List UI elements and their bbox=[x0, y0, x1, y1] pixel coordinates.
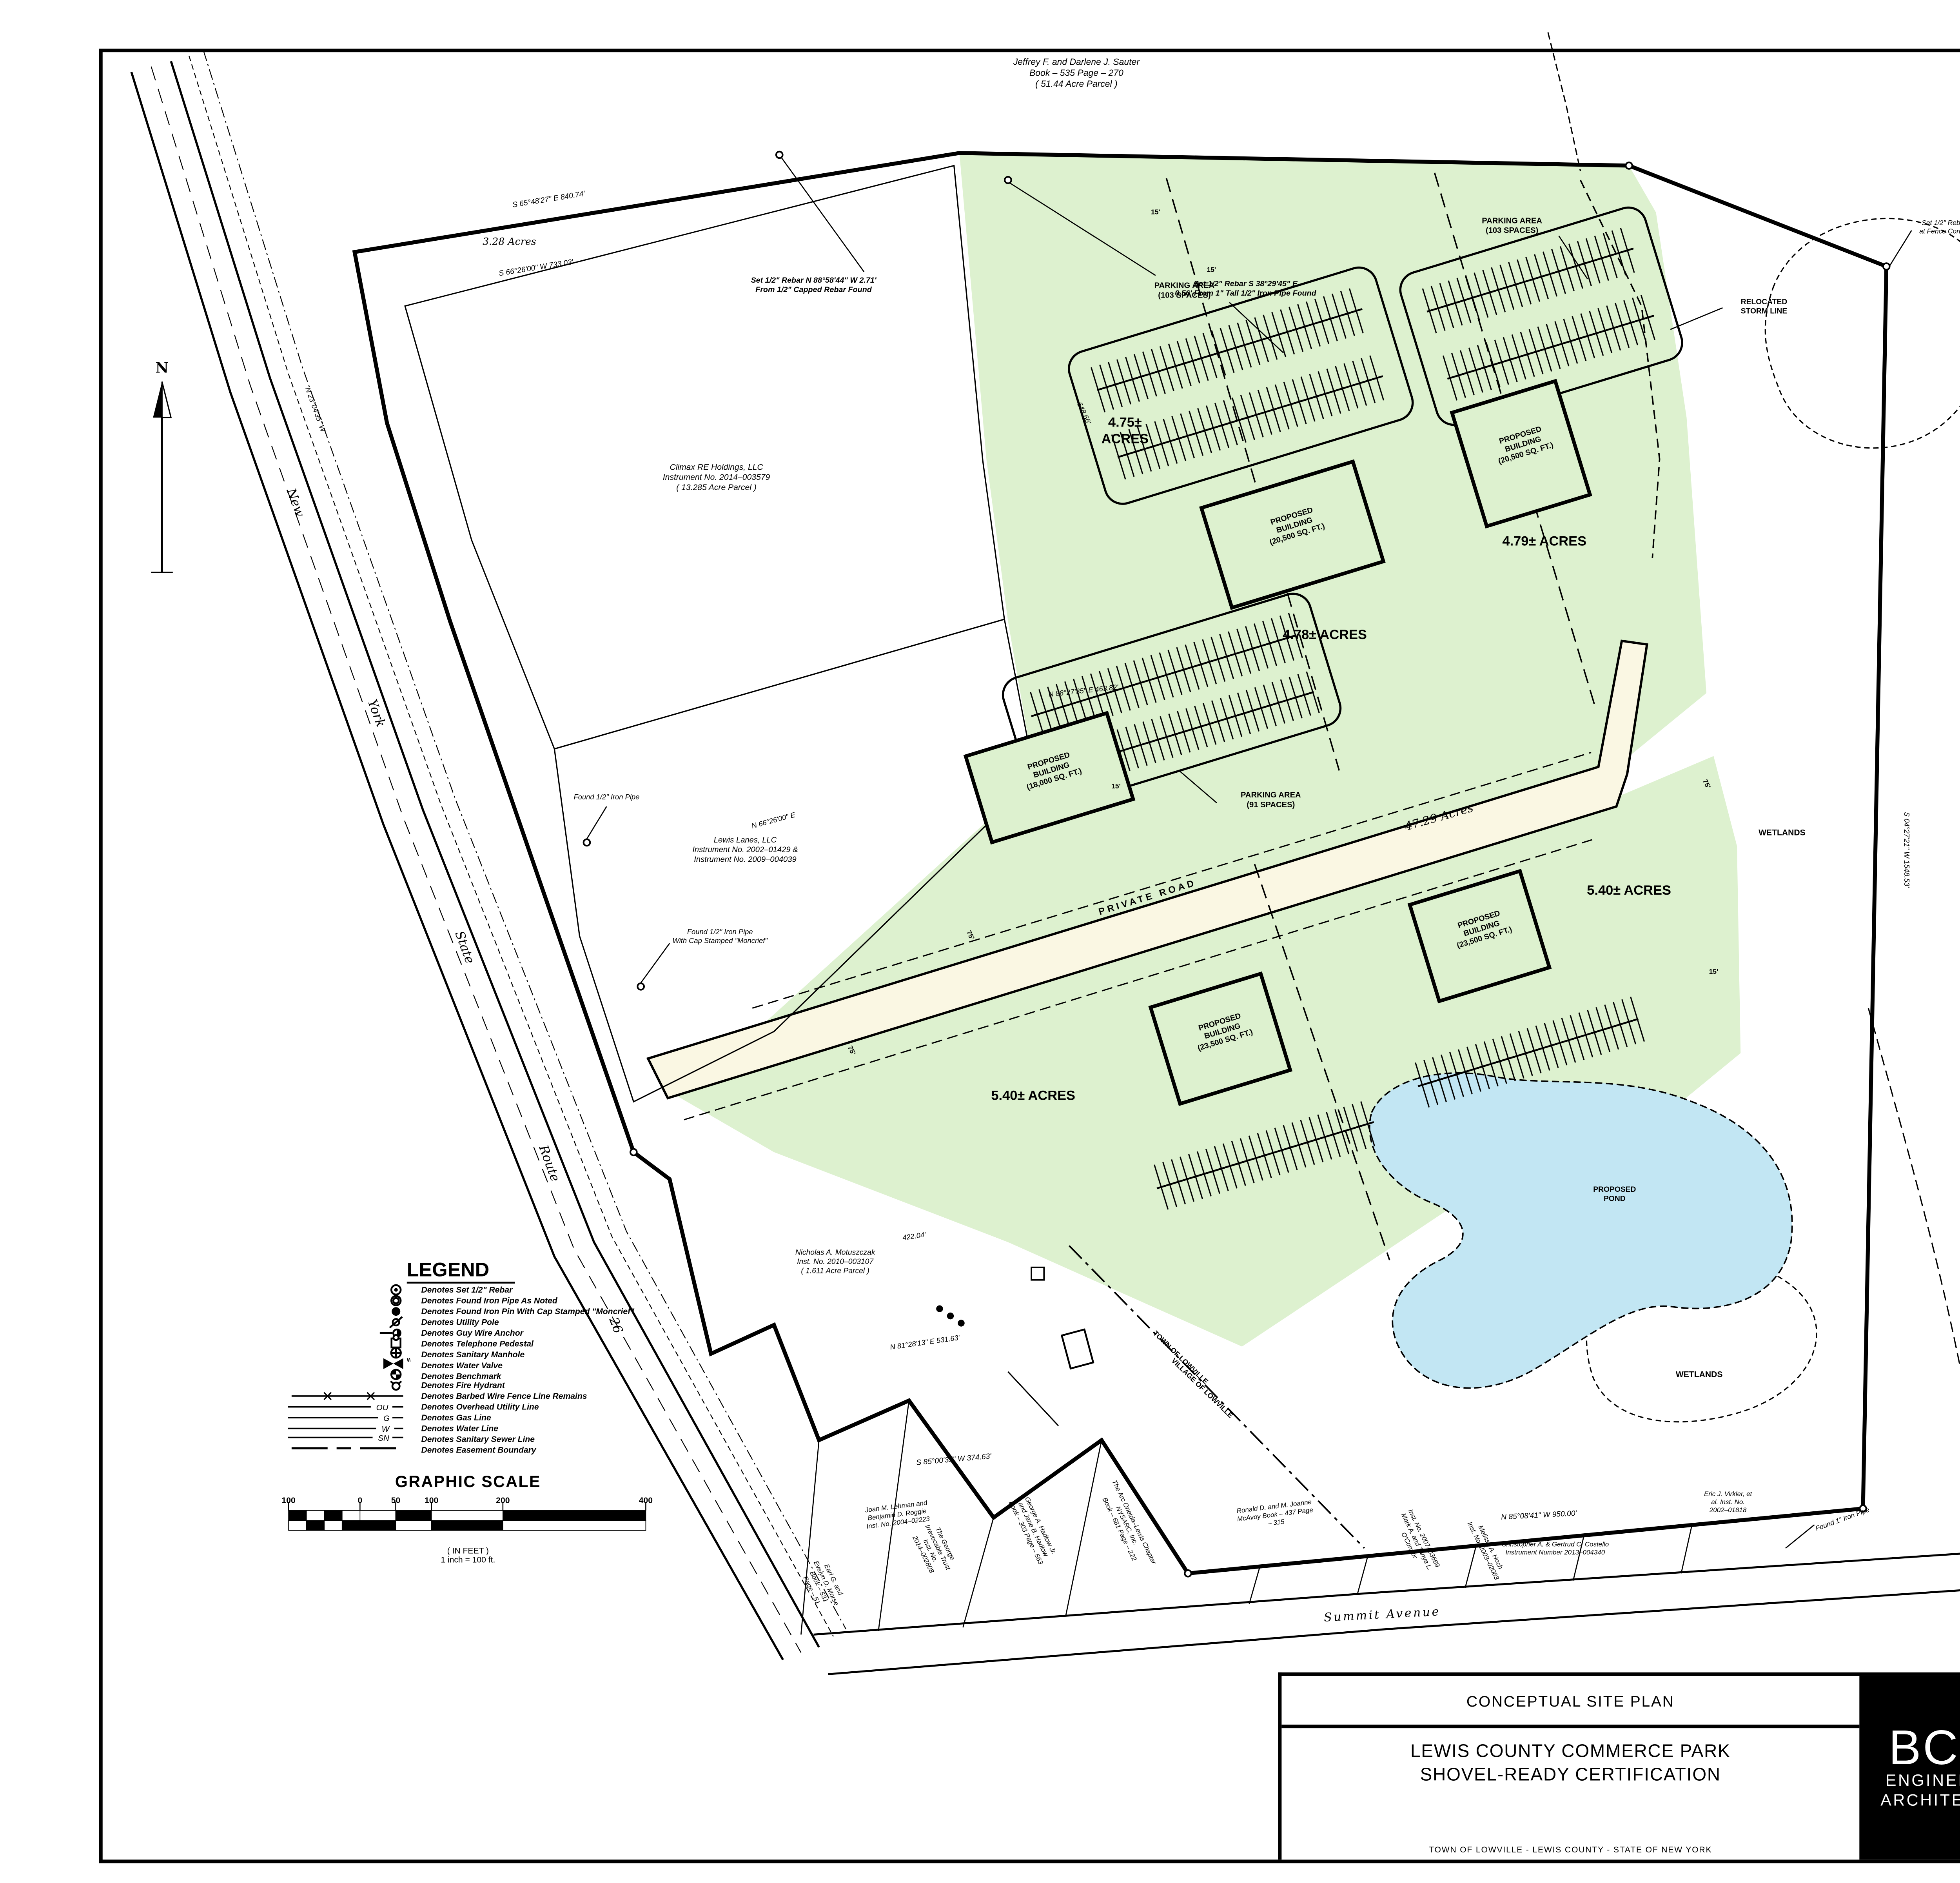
plan-label-town-of-lowville: TOWN OF LOWVILLE bbox=[1152, 1329, 1210, 1386]
legend-item-label: Denotes Utility Pole bbox=[421, 1318, 499, 1327]
legend-item-label: Denotes Barbed Wire Fence Line Remains bbox=[421, 1392, 587, 1401]
site-plan-sheet: Jeffrey F. and Darlene J. SauterBook – 5… bbox=[0, 0, 1960, 1883]
plan-label-route26-new: New bbox=[283, 486, 308, 519]
svg-text:100: 100 bbox=[425, 1496, 438, 1505]
svg-text:200: 200 bbox=[496, 1496, 510, 1505]
plan-label-dim-422: 422.04' bbox=[902, 1230, 927, 1242]
legend-item-label: Denotes Benchmark bbox=[421, 1371, 501, 1380]
project-title-line1: LEWIS COUNTY COMMERCE PARK bbox=[1410, 1741, 1731, 1764]
plan-label-bearing-1548: S 04°27'21" W 1548.53' bbox=[1903, 812, 1911, 888]
plan-label-dim-15-b: 15' bbox=[1207, 265, 1216, 273]
plan-label-wetlands-right: WETLANDS bbox=[1759, 828, 1806, 837]
legend-item-label: Denotes Set 1/2" Rebar bbox=[421, 1286, 512, 1295]
plan-label-north-letter: N bbox=[155, 360, 169, 376]
north-arrow-icon bbox=[151, 381, 173, 572]
project-location: TOWN OF LOWVILLE - LEWIS COUNTY - STATE … bbox=[1429, 1845, 1712, 1854]
plan-label-acres-5-40-left: 5.40± ACRES bbox=[991, 1088, 1075, 1103]
plan-label-route26-state: State bbox=[452, 929, 477, 966]
svg-text:50: 50 bbox=[391, 1496, 401, 1505]
plan-label-rebar-note-left: Set 1/2" Rebar N 88°58'44" W 2.71'From 1… bbox=[751, 276, 877, 294]
plan-label-parcel-arc: The Arc Oneida–Lewis ChapterNYSARC, Inc.… bbox=[1096, 1479, 1158, 1573]
plan-label-route26-route: Route bbox=[536, 1143, 563, 1184]
plan-label-dim-15-d: 15' bbox=[1111, 782, 1121, 790]
svg-text:100: 100 bbox=[281, 1496, 295, 1505]
title-block: CONCEPTUAL SITE PLAN LEWIS COUNTY COMMER… bbox=[1278, 1672, 1960, 1860]
legend-title: LEGEND bbox=[407, 1260, 515, 1284]
plan-label-sauter: Jeffrey F. and Darlene J. SauterBook – 5… bbox=[1013, 56, 1140, 89]
plan-label-bearing-950: N 85°08'41" W 950.00' bbox=[1501, 1509, 1577, 1522]
svg-text:400: 400 bbox=[639, 1496, 653, 1505]
plan-label-dim-15-c: 15' bbox=[1709, 968, 1719, 975]
bca-logo-architects: ARCHITECTS bbox=[1880, 1791, 1960, 1811]
plan-label-parcel-morse: Earl G. andEvelyn D. MorseBook – 531Page… bbox=[798, 1556, 848, 1614]
title-block-titles: CONCEPTUAL SITE PLAN LEWIS COUNTY COMMER… bbox=[1281, 1676, 1863, 1859]
proposed-pond-shape bbox=[1370, 1073, 1792, 1388]
plan-label-parcel-virkler: Eric J. Virkler, etal. Inst. No.2002–018… bbox=[1704, 1490, 1753, 1514]
bca-logo-text: BCA bbox=[1889, 1725, 1960, 1771]
plan-label-relocated-storm: RELOCATEDSTORM LINE bbox=[1741, 298, 1788, 316]
plan-label-rebar-fence-corner: Set 1/2" Rebarat Fence Corner bbox=[1919, 219, 1960, 235]
legend-item: Denotes Easement Boundary bbox=[285, 1444, 789, 1455]
svg-text:0: 0 bbox=[358, 1496, 362, 1505]
graphic-scale-title: GRAPHIC SCALE bbox=[249, 1473, 688, 1491]
plan-label-summit-avenue: Summit Avenue bbox=[1323, 1605, 1441, 1625]
plan-label-parcel-lehman: Joan M. Lehman andBenjamin D. RoggieInst… bbox=[864, 1499, 930, 1530]
legend-item-label: Denotes Telephone Pedestal bbox=[421, 1339, 533, 1348]
plan-label-acres-5-40-right: 5.40± ACRES bbox=[1587, 883, 1671, 898]
legend-item-label: Denotes Found Iron Pipe As Noted bbox=[421, 1297, 557, 1306]
bca-logo-engineers: ENGINEERS bbox=[1886, 1771, 1960, 1791]
bca-logo: BCA ENGINEERS ARCHITECTS bbox=[1863, 1676, 1960, 1859]
plan-label-bearing-6626: N 66°26'00" E bbox=[751, 810, 797, 830]
graphic-scale: GRAPHIC SCALE 100050100200400 ( IN FEET … bbox=[249, 1473, 688, 1564]
project-title-line2: SHOVEL-READY CERTIFICATION bbox=[1410, 1764, 1731, 1788]
plan-label-acres-4-79: 4.79± ACRES bbox=[1502, 534, 1586, 548]
legend-item-label: Denotes Easement Boundary bbox=[421, 1445, 536, 1454]
legend: LEGEND Denotes Set 1/2" RebarDenotes Fou… bbox=[285, 1260, 789, 1455]
plan-label-parcel-mcavoy: Ronald D. and M. JoanneMcAvoy Book – 437… bbox=[1236, 1498, 1314, 1531]
legend-item-label: Denotes Sanitary Manhole bbox=[421, 1350, 524, 1359]
legend-item-label: Denotes Gas Line bbox=[421, 1413, 491, 1422]
scale-ratio: 1 inch = 100 ft. bbox=[249, 1555, 688, 1564]
plan-label-acres-4-78: 4.78± ACRES bbox=[1283, 627, 1367, 642]
scale-bar: 100050100200400 bbox=[256, 1491, 681, 1534]
scale-units: ( IN FEET ) bbox=[249, 1546, 688, 1555]
plan-label-found-pipe-2: Found 1/2" Iron PipeWith Cap Stamped "Mo… bbox=[672, 928, 768, 944]
plan-label-wetlands-bottom: WETLANDS bbox=[1676, 1370, 1723, 1379]
legend-item-label: Denotes Found Iron Pin With Cap Stamped … bbox=[421, 1307, 634, 1316]
plan-label-bearing-531: N 81°28'13" E 531.63' bbox=[889, 1333, 961, 1351]
legend-item-label: Denotes Water Valve bbox=[421, 1360, 503, 1369]
legend-item-label: Denotes Guy Wire Anchor bbox=[421, 1329, 523, 1338]
plan-label-village-of-lowville: VILLAGE OF LOWVILLE bbox=[1170, 1356, 1235, 1420]
plan-label-parcel-costello: Christopher A. & Gertrud C. CostelloInst… bbox=[1501, 1540, 1609, 1556]
plan-label-bearing-733: S 66°26'00" W 733.03' bbox=[498, 258, 574, 278]
legend-item-label: Denotes Fire Hydrant bbox=[421, 1382, 505, 1391]
legend-item-label: Denotes Sanitary Sewer Line bbox=[421, 1434, 535, 1444]
ease-icon bbox=[285, 1434, 421, 1466]
plan-label-parcel-trust: The GeorgeIrrevocable TrustInst. No.2014… bbox=[909, 1520, 960, 1579]
plan-label-dim-15-a: 15' bbox=[1151, 208, 1160, 216]
legend-item-label: Denotes Water Line bbox=[421, 1424, 498, 1433]
plan-label-acres-3-28: 3.28 Acres bbox=[483, 236, 536, 247]
plan-label-parcel-oconnor: Inst. No. 2007–03669Mark A. and Tanya L.… bbox=[1392, 1508, 1441, 1576]
legend-item-label: Denotes Overhead Utility Line bbox=[421, 1403, 539, 1412]
project-title: LEWIS COUNTY COMMERCE PARK SHOVEL-READY … bbox=[1410, 1741, 1731, 1787]
motuszczak-structures bbox=[937, 1267, 1093, 1426]
plan-label-parcel-hadlow: George A. Hadlow Jr.and Jane B. HadlowBo… bbox=[1007, 1493, 1059, 1566]
plan-label-lewis-lanes: Lewis Lanes, LLCInstrument No. 2002–0142… bbox=[692, 836, 798, 864]
plan-type: CONCEPTUAL SITE PLAN bbox=[1281, 1676, 1859, 1728]
plan-label-parcel-hoch: Melissa A. HochInst. No. 2003–02083 bbox=[1466, 1517, 1508, 1581]
plan-label-climax: Climax RE Holdings, LLCInstrument No. 20… bbox=[663, 463, 770, 492]
plan-label-motuszczak: Nicholas A. MotuszczakInst. No. 2010–003… bbox=[795, 1248, 876, 1275]
plan-label-found-pipe-1: Found 1/2" Iron Pipe bbox=[574, 793, 640, 801]
plan-label-bearing-840: S 65°48'27" E 840.74' bbox=[512, 190, 586, 209]
site-plan-drawing: Jeffrey F. and Darlene J. SauterBook – 5… bbox=[0, 0, 1960, 1883]
